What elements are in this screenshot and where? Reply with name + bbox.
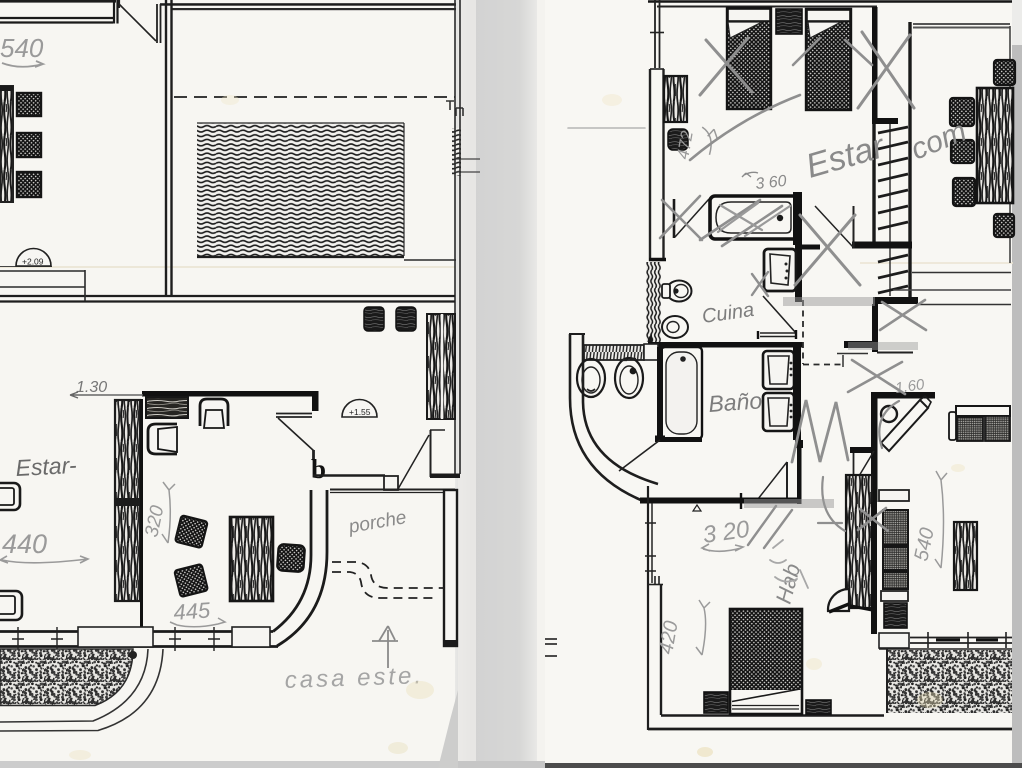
svg-text:Baño: Baño — [708, 387, 764, 417]
svg-text:445: 445 — [173, 597, 212, 625]
svg-text:casa este.: casa este. — [284, 662, 424, 694]
svg-text:b: b — [311, 454, 326, 484]
svg-text:Estar-: Estar- — [15, 452, 78, 481]
svg-text:540: 540 — [0, 33, 44, 63]
svg-text:440: 440 — [2, 529, 47, 559]
svg-text:+2.09: +2.09 — [22, 257, 44, 267]
svg-text:1.30: 1.30 — [76, 379, 107, 396]
svg-text:+1.55: +1.55 — [349, 407, 371, 417]
svg-text:3 60: 3 60 — [755, 173, 788, 193]
